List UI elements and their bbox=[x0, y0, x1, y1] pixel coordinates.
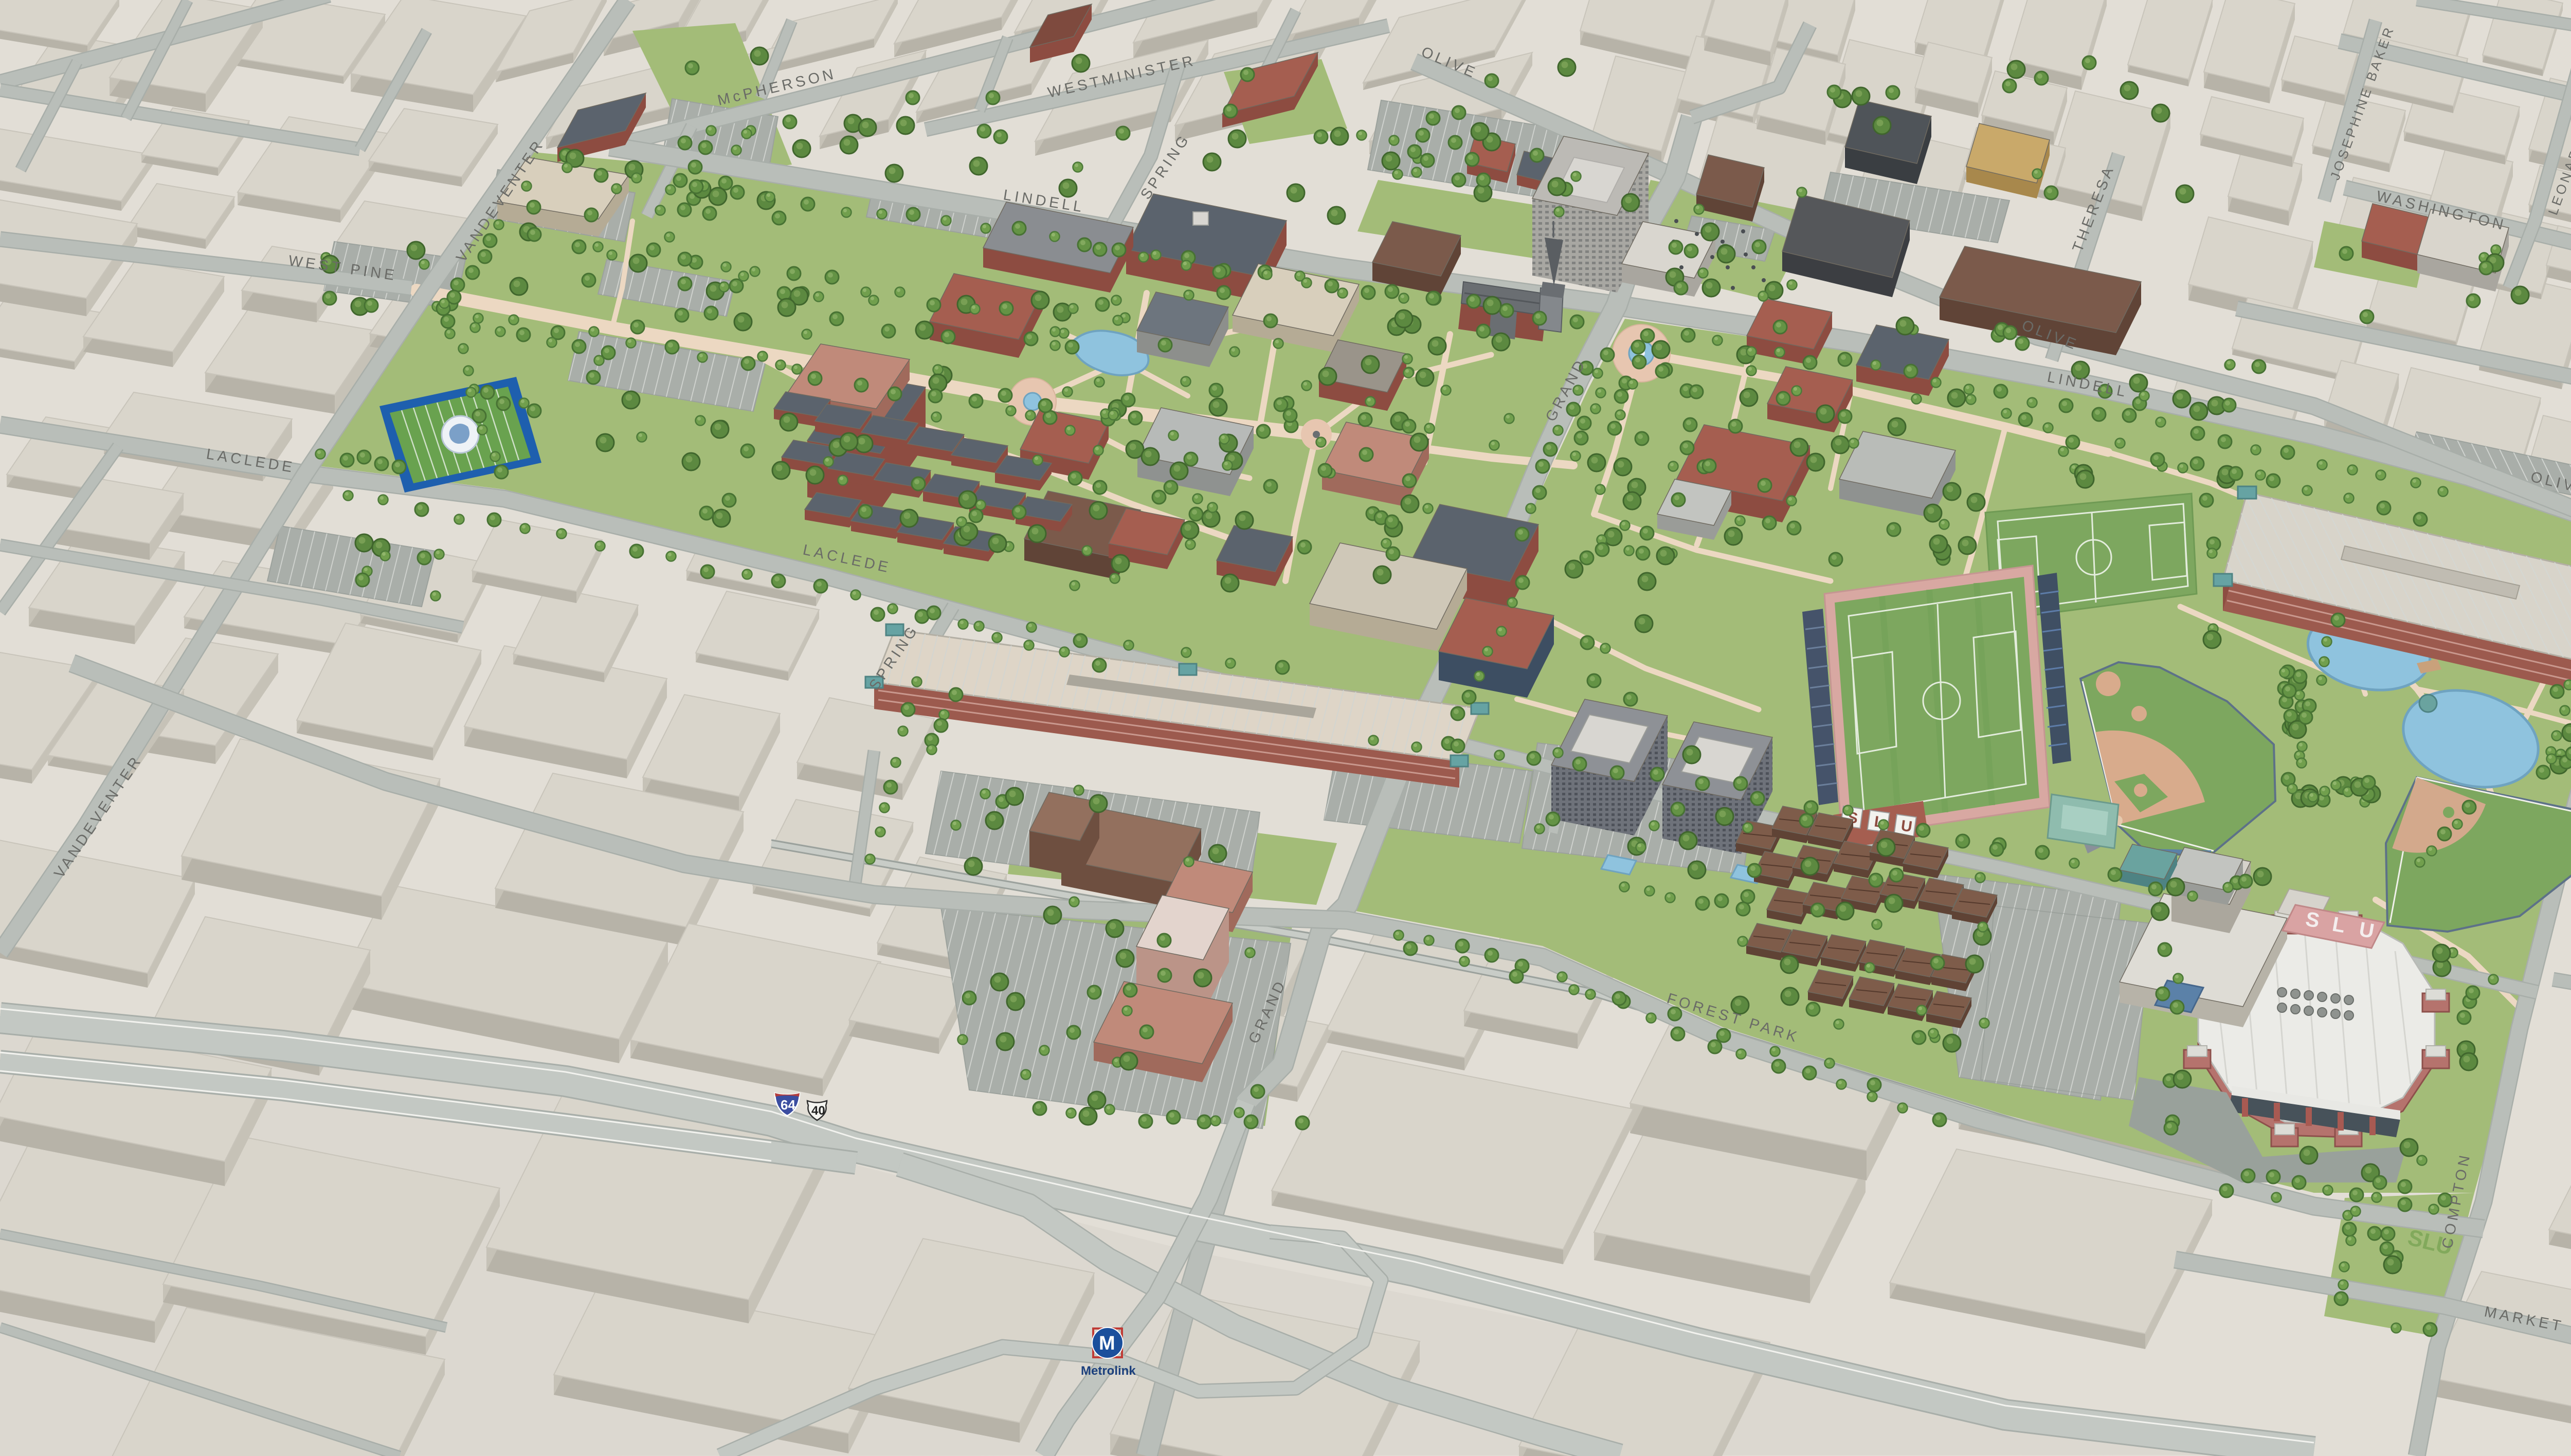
svg-text:U: U bbox=[1900, 817, 1913, 835]
svg-text:Metrolink: Metrolink bbox=[1081, 1364, 1136, 1378]
svg-text:M: M bbox=[1099, 1333, 1115, 1354]
svg-text:40: 40 bbox=[811, 1104, 825, 1118]
svg-text:64: 64 bbox=[781, 1097, 795, 1113]
